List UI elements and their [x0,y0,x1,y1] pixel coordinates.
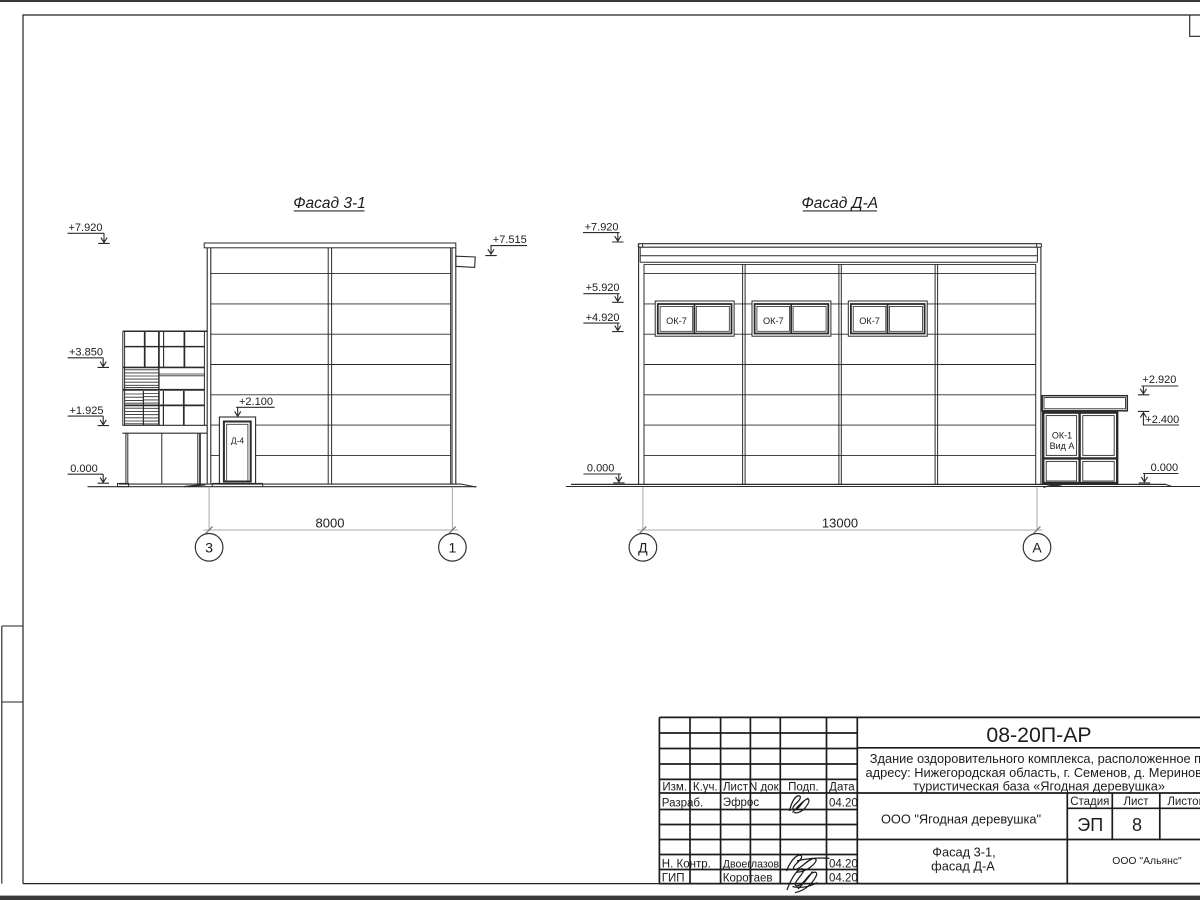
svg-text:Разраб.: Разраб. [662,797,703,809]
svg-text:08-20П-АР: 08-20П-АР [986,723,1091,747]
svg-text:ОК-7: ОК-7 [763,316,784,326]
svg-text:8000: 8000 [316,515,345,530]
svg-text:+2.920: +2.920 [1142,374,1176,386]
svg-text:+5.920: +5.920 [586,282,620,294]
svg-text:Дата: Дата [829,781,855,793]
svg-text:Н. Контр.: Н. Контр. [662,858,711,870]
svg-text:Д: Д [638,539,648,555]
svg-text:фасад Д-А: фасад Д-А [931,859,995,874]
svg-text:+7.920: +7.920 [585,221,619,233]
svg-text:Лист: Лист [1124,796,1150,808]
svg-text:Здание оздоровительного компле: Здание оздоровительного комплекса, распо… [870,751,1200,766]
svg-text:0.000: 0.000 [1151,462,1179,474]
svg-text:Фасад Д-А: Фасад Д-А [801,195,878,212]
svg-text:ЭП: ЭП [1077,815,1103,835]
svg-text:0.000: 0.000 [587,462,615,474]
svg-text:1: 1 [449,539,457,555]
svg-text:04.20: 04.20 [829,872,858,884]
svg-text:туристическая база «Ягодная де: туристическая база «Ягодная деревушка» [913,779,1165,794]
svg-text:Двоеглазов: Двоеглазов [723,858,780,870]
svg-text:8: 8 [1132,815,1142,835]
svg-text:N док.: N док. [749,781,782,793]
svg-text:04.20: 04.20 [829,797,858,809]
svg-text:Вид А: Вид А [1050,441,1075,451]
svg-text:+7.515: +7.515 [493,234,527,246]
svg-text:Эфрос: Эфрос [723,797,760,809]
svg-text:+3.850: +3.850 [69,347,103,359]
svg-text:+1.925: +1.925 [70,405,104,417]
svg-text:Коротаев: Коротаев [723,872,773,884]
svg-text:А: А [1032,539,1042,555]
svg-text:Стадия: Стадия [1070,796,1109,808]
svg-text:ОК-7: ОК-7 [666,316,687,326]
svg-text:Лист: Лист [723,781,749,793]
svg-text:ГИП: ГИП [662,872,685,884]
svg-text:Д-4: Д-4 [231,436,245,446]
svg-text:+2.100: +2.100 [239,396,273,408]
svg-text:ООО "Альянс": ООО "Альянс" [1112,856,1182,867]
svg-text:04.20: 04.20 [829,858,858,870]
svg-text:Подп.: Подп. [788,781,819,793]
svg-text:3: 3 [205,539,213,555]
svg-text:13000: 13000 [822,515,858,530]
svg-text:ОК-1: ОК-1 [1052,430,1072,440]
svg-text:Изм.: Изм. [662,781,687,793]
svg-text:ОК-7: ОК-7 [859,316,880,326]
svg-text:Фасад 3-1,: Фасад 3-1, [932,845,995,860]
svg-text:К.уч.: К.уч. [693,781,718,793]
svg-text:+4.920: +4.920 [586,312,620,324]
svg-text:+2.400: +2.400 [1145,414,1179,426]
svg-text:Листов: Листов [1167,796,1200,808]
svg-text:+7.920: +7.920 [69,222,103,234]
svg-text:Фасад 3-1: Фасад 3-1 [293,195,366,212]
svg-text:0.000: 0.000 [70,463,98,475]
svg-text:ООО "Ягодная деревушка": ООО "Ягодная деревушка" [881,811,1041,826]
